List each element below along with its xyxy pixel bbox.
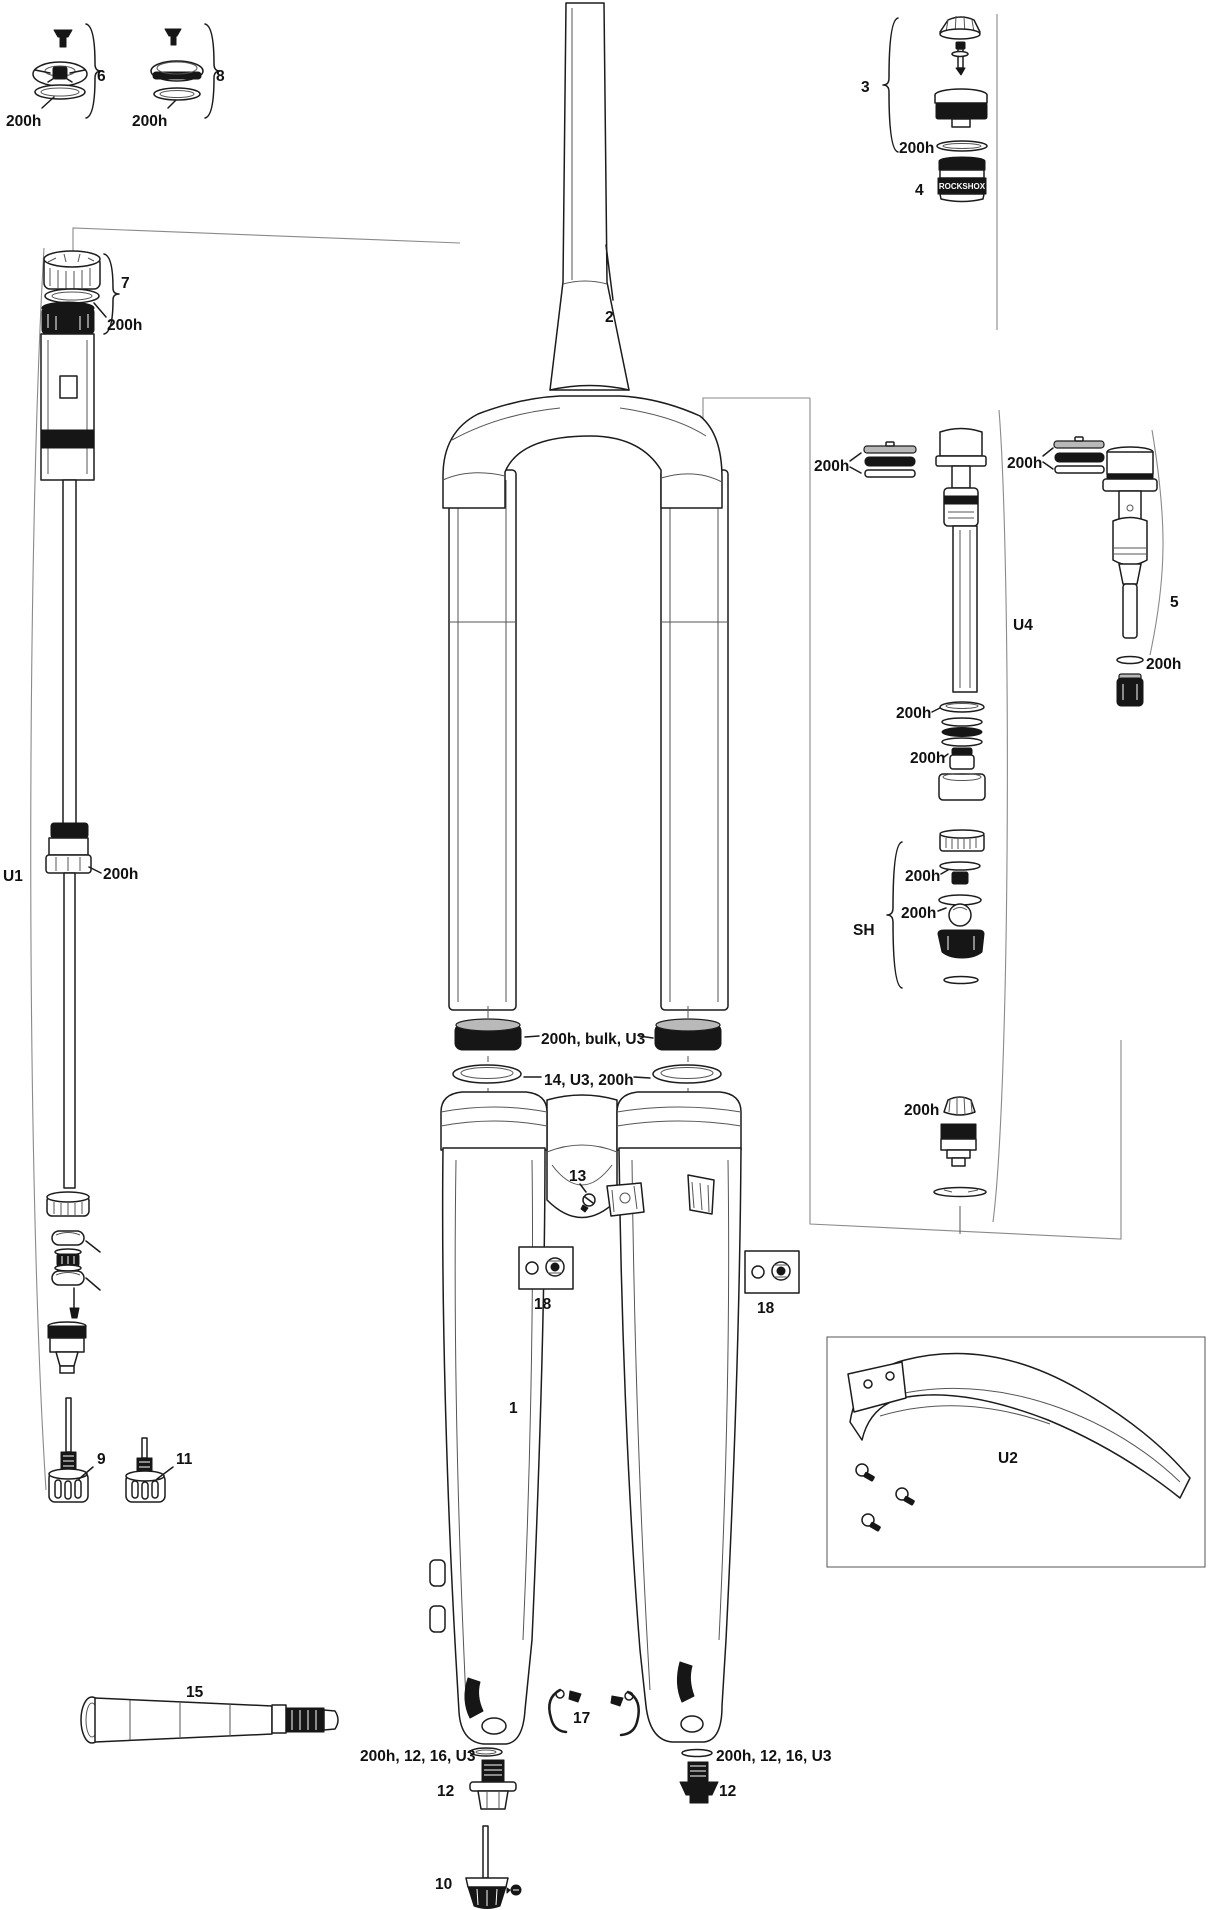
steerer-tube bbox=[550, 3, 629, 390]
label-part4: 4 bbox=[915, 182, 924, 199]
label-wear-sh2: 200h bbox=[910, 750, 945, 767]
brake-mount-tab-lower bbox=[430, 1606, 445, 1632]
label-wear-u4b: 200h bbox=[904, 1102, 939, 1119]
label-part17: 17 bbox=[573, 1710, 590, 1727]
part-5-small-service-parts bbox=[1117, 657, 1143, 707]
label-wear-6: 200h bbox=[6, 113, 41, 130]
part-17-clips bbox=[549, 1690, 638, 1735]
part-10-tool bbox=[466, 1826, 521, 1909]
part-3-air-cap-assembly bbox=[935, 16, 987, 151]
label-groupU4: U4 bbox=[1013, 617, 1033, 634]
label-wear-3: 200h bbox=[899, 140, 934, 157]
label-part2: 2 bbox=[605, 309, 614, 326]
part-8-top-cap bbox=[151, 29, 203, 108]
label-groupU2: U2 bbox=[998, 1450, 1018, 1467]
label-wear-glide-left: 200h bbox=[814, 458, 849, 475]
part-18-right bbox=[745, 1251, 799, 1293]
fender-screws bbox=[856, 1464, 915, 1531]
label-part11: 11 bbox=[176, 1451, 193, 1468]
part-5-damper-shaft bbox=[1103, 447, 1157, 638]
fork-upper-assembly bbox=[443, 3, 728, 1010]
exploded-parts-diagram: ROCKSHOX bbox=[0, 0, 1214, 1910]
part-12-right-bolt bbox=[680, 1750, 718, 1804]
part-4-grease-canister: ROCKSHOX bbox=[938, 157, 986, 202]
label-part5: 5 bbox=[1170, 594, 1179, 611]
canister-brand-text: ROCKSHOX bbox=[939, 182, 986, 191]
label-part9: 9 bbox=[97, 1451, 106, 1468]
label-wear-5: 200h bbox=[1146, 656, 1181, 673]
part-18-left bbox=[519, 1247, 573, 1289]
label-seal-kit: 200h, bulk, U3 bbox=[541, 1031, 646, 1048]
lowers-right-leg bbox=[619, 1148, 741, 1742]
label-part7: 7 bbox=[121, 275, 130, 292]
brace-groupSH bbox=[887, 842, 902, 988]
foam-ring-right bbox=[653, 1065, 721, 1083]
lower-right-parts bbox=[938, 830, 984, 984]
brace-part3 bbox=[883, 18, 898, 152]
fork-lowers bbox=[430, 1092, 741, 1744]
label-wear-lr2: 200h bbox=[901, 905, 936, 922]
diagram-canvas: ROCKSHOX bbox=[0, 0, 1214, 1910]
label-part10: 10 bbox=[435, 1876, 452, 1893]
foam-ring-left bbox=[453, 1065, 521, 1083]
label-groupU1: U1 bbox=[3, 868, 23, 885]
part-6-top-cap-dial bbox=[33, 30, 87, 108]
label-axle-kit-left: 200h, 12, 16, U3 bbox=[360, 1748, 476, 1765]
part-12-left-bolt bbox=[470, 1748, 516, 1809]
dust-seal-left bbox=[455, 1019, 521, 1050]
label-part3: 3 bbox=[861, 79, 870, 96]
part-11-rebound-adjuster bbox=[126, 1438, 173, 1502]
label-part12-left: 12 bbox=[437, 1783, 454, 1800]
label-part18-right: 18 bbox=[757, 1300, 775, 1317]
brake-mount-tab-upper bbox=[430, 1560, 445, 1586]
label-part12-right: 12 bbox=[719, 1783, 736, 1800]
label-part18-left: 18 bbox=[534, 1296, 552, 1313]
part-15-axle bbox=[81, 1697, 338, 1743]
label-wear-glide-right: 200h bbox=[1007, 455, 1042, 472]
glide-ring-stack-left bbox=[850, 442, 916, 477]
label-axle-kit-right: 200h, 12, 16, U3 bbox=[716, 1748, 832, 1765]
label-part13: 13 bbox=[569, 1168, 587, 1185]
label-foam-kit: 14, U3, 200h bbox=[544, 1072, 634, 1089]
label-wear-lr1: 200h bbox=[905, 868, 940, 885]
dust-seal-right bbox=[655, 1019, 721, 1050]
u4-bottom-parts bbox=[934, 1097, 986, 1234]
air-shaft-u4 bbox=[936, 429, 986, 693]
label-wear-8: 200h bbox=[132, 113, 167, 130]
label-wear-u1: 200h bbox=[103, 866, 138, 883]
label-groupSH: SH bbox=[853, 922, 875, 939]
glide-ring-stack-right bbox=[1043, 437, 1104, 473]
label-part8: 8 bbox=[216, 68, 225, 85]
label-wear-sh1: 200h bbox=[896, 705, 931, 722]
label-part15: 15 bbox=[186, 1684, 204, 1701]
label-part1: 1 bbox=[509, 1400, 518, 1417]
lowers-arch bbox=[547, 1095, 617, 1218]
crown bbox=[443, 396, 722, 508]
damper-cartridge-body bbox=[41, 302, 94, 1188]
part-9-rebound-adjuster bbox=[49, 1398, 93, 1502]
label-wear-7: 200h bbox=[107, 317, 142, 334]
label-part6: 6 bbox=[97, 68, 106, 85]
